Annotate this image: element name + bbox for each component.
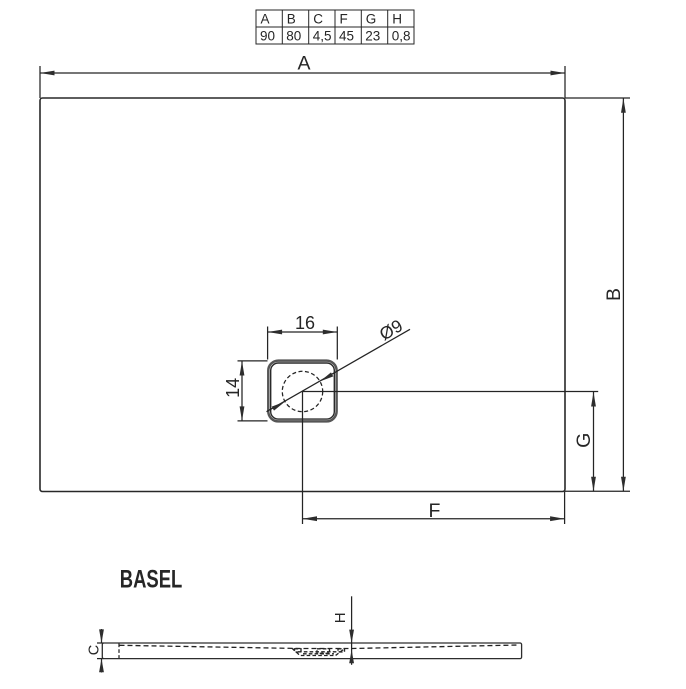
svg-text:0,8: 0,8 [392, 29, 411, 44]
svg-text:F: F [428, 500, 440, 522]
svg-text:45: 45 [339, 29, 354, 44]
svg-text:F: F [340, 12, 348, 27]
svg-text:C: C [313, 12, 323, 27]
svg-text:C: C [86, 645, 102, 655]
svg-text:BASEL: BASEL [120, 565, 183, 593]
svg-text:4,5: 4,5 [313, 29, 332, 44]
svg-text:A: A [261, 12, 270, 27]
svg-text:16: 16 [295, 313, 315, 333]
svg-text:23: 23 [365, 29, 380, 44]
svg-text:80: 80 [286, 29, 301, 44]
svg-text:G: G [573, 433, 595, 448]
svg-text:H: H [332, 612, 349, 623]
svg-text:B: B [287, 12, 296, 27]
svg-text:H: H [392, 12, 402, 27]
svg-text:A: A [297, 53, 310, 75]
svg-text:B: B [603, 288, 625, 301]
svg-text:90: 90 [260, 29, 275, 44]
svg-text:G: G [366, 12, 377, 27]
svg-text:14: 14 [223, 378, 243, 398]
